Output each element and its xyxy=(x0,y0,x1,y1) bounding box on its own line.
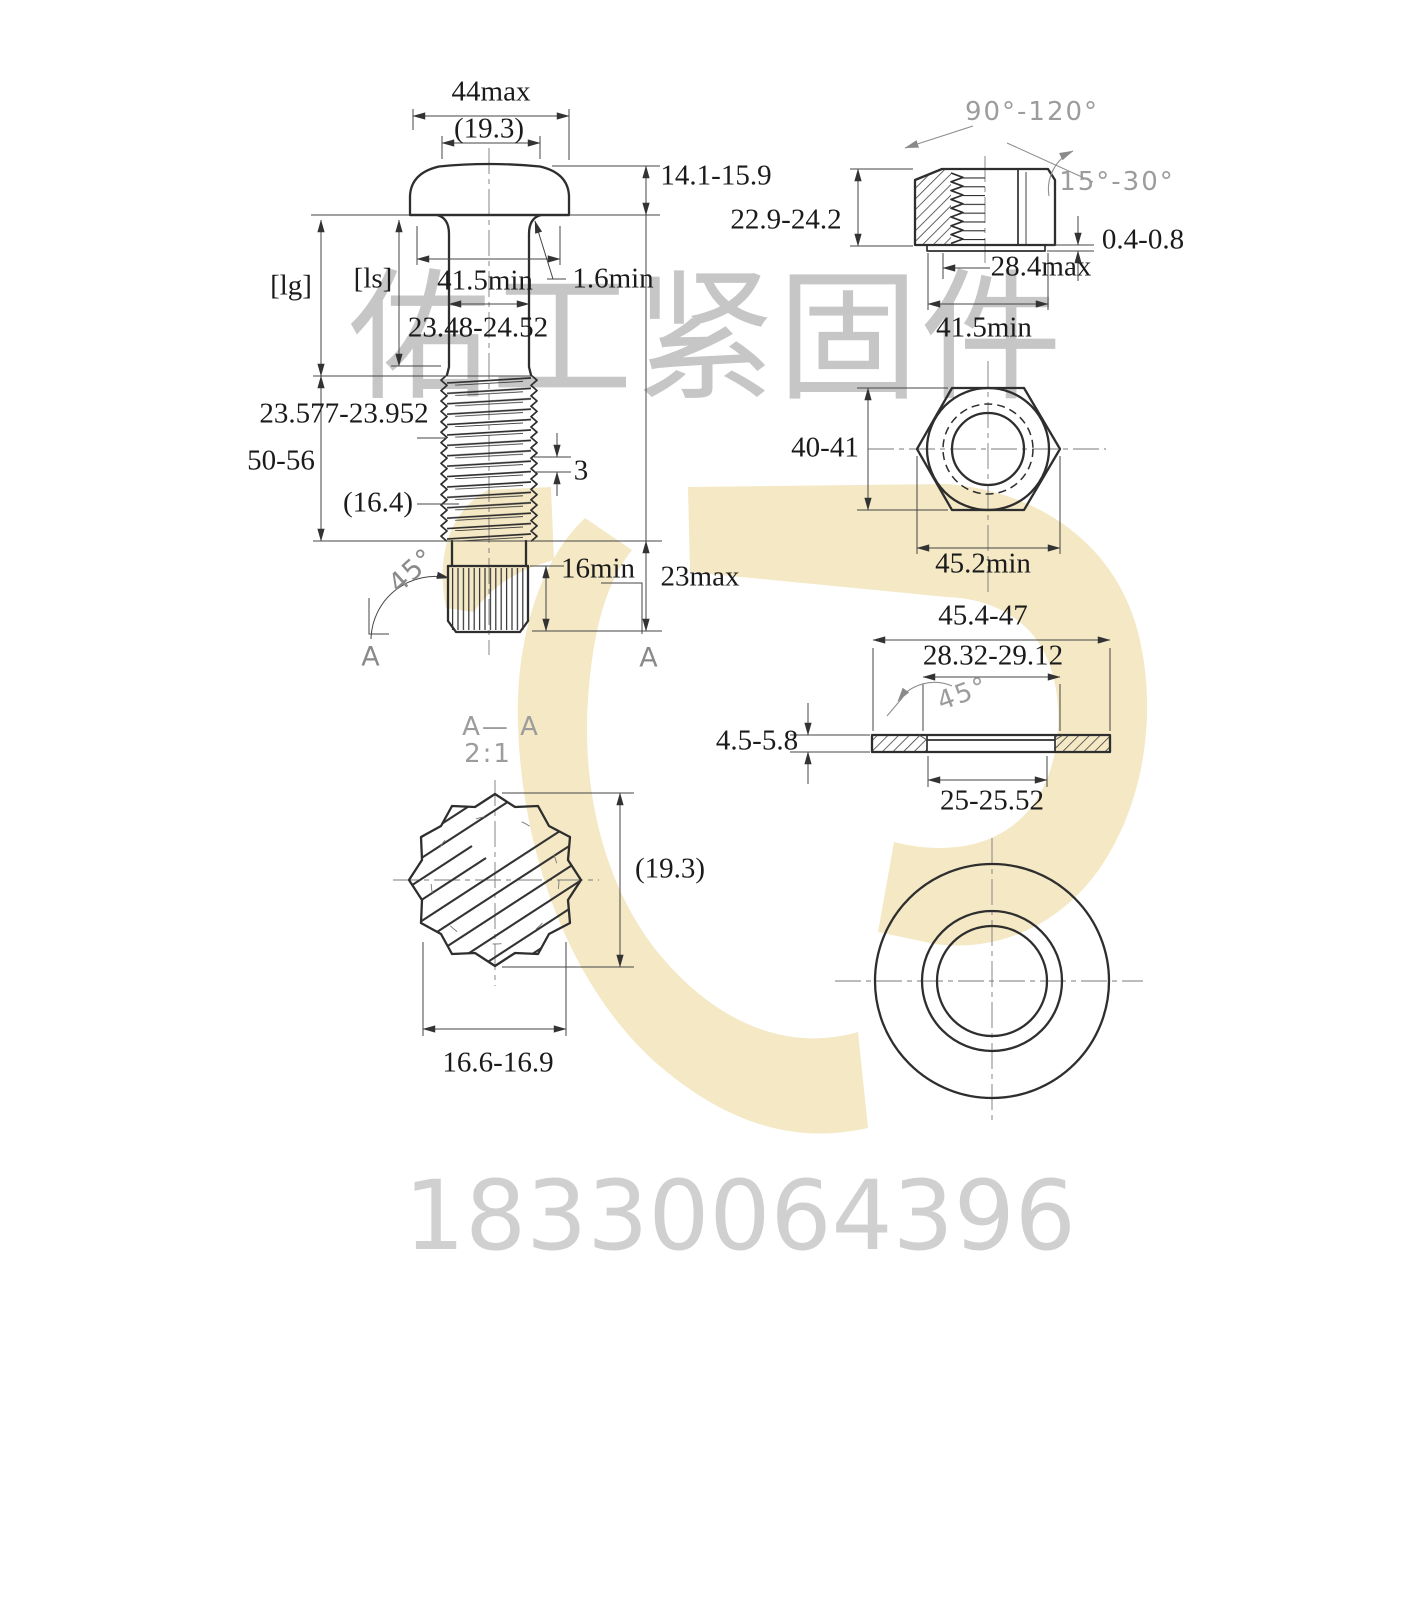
dim-thread-length: 50-56 xyxy=(247,445,315,478)
label-shank-length: [ls] xyxy=(354,263,393,296)
dim-shank-dia: 23.48-24.52 xyxy=(408,312,548,345)
dim-nut-across-corners: 45.2min xyxy=(935,548,1031,581)
dim-nut-across-flats: 40-41 xyxy=(791,432,859,465)
dim-spline-length: 16min xyxy=(561,553,635,586)
dim-bearing-dia: 41.5min xyxy=(437,265,533,298)
cad-drawing xyxy=(0,0,1416,1600)
dim-washer-outer-dia: 45.4-47 xyxy=(938,600,1027,633)
dim-nut-crest-angle: 90°-120° xyxy=(965,97,1099,127)
dim-head-dia: 44max xyxy=(452,76,531,109)
dim-end-length: 23max xyxy=(661,561,740,594)
dim-nut-washer-face-dia: 28.4max xyxy=(991,251,1092,284)
dim-section-dia-ref: (19.3) xyxy=(635,853,705,886)
section-aa-label: A— A xyxy=(462,712,540,742)
dim-nut-washer-face-height: 0.4-0.8 xyxy=(1102,224,1184,257)
dim-head-ref-dia: (19.3) xyxy=(454,113,524,146)
section-mark-a-right: A xyxy=(639,643,658,674)
dim-thread-dia: 23.577-23.952 xyxy=(259,398,428,431)
dim-nut-chamfer-angle: 15°-30° xyxy=(1059,167,1175,197)
dim-head-height: 14.1-15.9 xyxy=(660,160,771,193)
drawing-page: 佑工紧固件 18330064396 xyxy=(0,0,1416,1600)
section-aa-scale: 2:1 xyxy=(464,739,512,769)
dim-washer-recess-dia: 28.32-29.12 xyxy=(923,640,1063,673)
label-grip-length: [lg] xyxy=(270,270,312,303)
dim-washer-thickness: 4.5-5.8 xyxy=(716,725,798,758)
dim-nut-height: 22.9-24.2 xyxy=(730,204,841,237)
dim-thread-pitch: 3 xyxy=(574,455,589,488)
dim-washer-hole-dia: 25-25.52 xyxy=(940,785,1044,818)
dim-spline-dia: 16.6-16.9 xyxy=(442,1047,553,1080)
section-mark-a-left: A xyxy=(361,642,380,673)
dim-nut-bearing-dia: 41.5min xyxy=(936,312,1032,345)
dim-fillet-radius: 1.6min xyxy=(572,263,653,296)
dim-runout-ref: (16.4) xyxy=(343,487,413,520)
